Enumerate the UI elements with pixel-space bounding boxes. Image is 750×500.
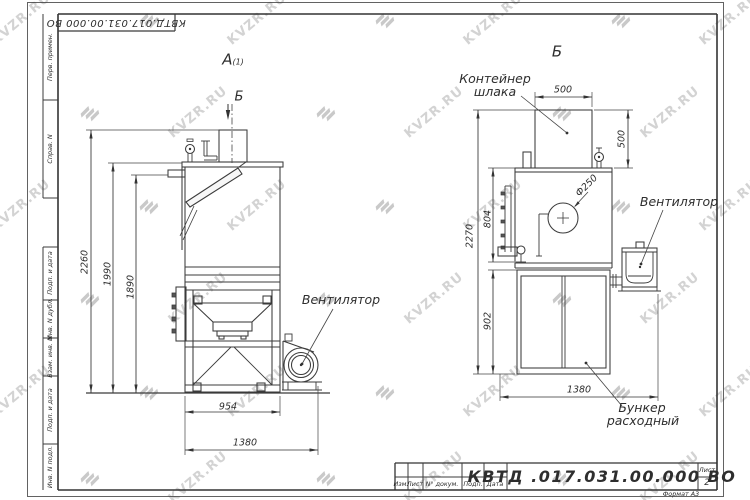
view-b-label: Б [552, 45, 562, 60]
margin-label-inv-dubl: Инв. N дубл. [47, 298, 53, 340]
dim-500-width: 500 [554, 85, 572, 95]
margin-label-inv-podl: Инв. N подл. [47, 446, 53, 488]
annotation-layer: КВТД.017.031.00.000 ВО Перв. примен. Спр… [0, 0, 750, 500]
title-col-ndokum: N° докум. [426, 481, 459, 487]
dim-954: 954 [219, 402, 237, 412]
section-b-arrow-label: Б [235, 91, 244, 104]
dim-500-height: 500 [617, 130, 627, 148]
dim-f250: Ф250 [574, 173, 599, 198]
sheet-number: 2 [704, 479, 709, 488]
title-col-list: Лист [407, 481, 423, 487]
margin-label-sprav-n: Справ. N [47, 134, 53, 163]
title-designation: КВТД .017.031.00.000 ВО [468, 469, 737, 485]
sheet-label: Лист [699, 467, 715, 473]
view-a-label: А(1) [222, 53, 244, 68]
label-slag-container-2: шлака [474, 86, 516, 99]
label-fan-right: Вентилятор [640, 196, 718, 209]
dim-1380-right: 1380 [567, 385, 591, 395]
margin-label-vzam-inv: Взам. инв. N [47, 336, 53, 378]
dim-902: 902 [483, 312, 493, 330]
dim-1990: 1990 [103, 262, 113, 286]
view-a-letter: А [222, 51, 232, 69]
dim-2270: 2270 [465, 224, 475, 248]
drawing-sheet: KVZR.RUKVZR.RUKVZR.RUKVZR.RUKVZR.RUKVZR.… [0, 0, 750, 500]
margin-label-podp-data-2: Подп. и дата [47, 388, 53, 432]
dim-1380-left: 1380 [233, 438, 257, 448]
doc-number-top-box: КВТД.017.031.00.000 ВО [46, 17, 186, 27]
label-fan-left: Вентилятор [302, 294, 380, 307]
format-label: Формат А3 [663, 491, 699, 497]
dim-1890: 1890 [126, 275, 136, 299]
view-a-sub: (1) [232, 58, 243, 67]
label-hopper-2: расходный [607, 415, 679, 428]
margin-label-perv-primen: Перв. примен. [47, 33, 53, 81]
margin-label-podp-data-1: Подп. и дата [47, 251, 53, 295]
dim-2260: 2260 [80, 250, 90, 274]
dim-804: 804 [483, 210, 493, 228]
